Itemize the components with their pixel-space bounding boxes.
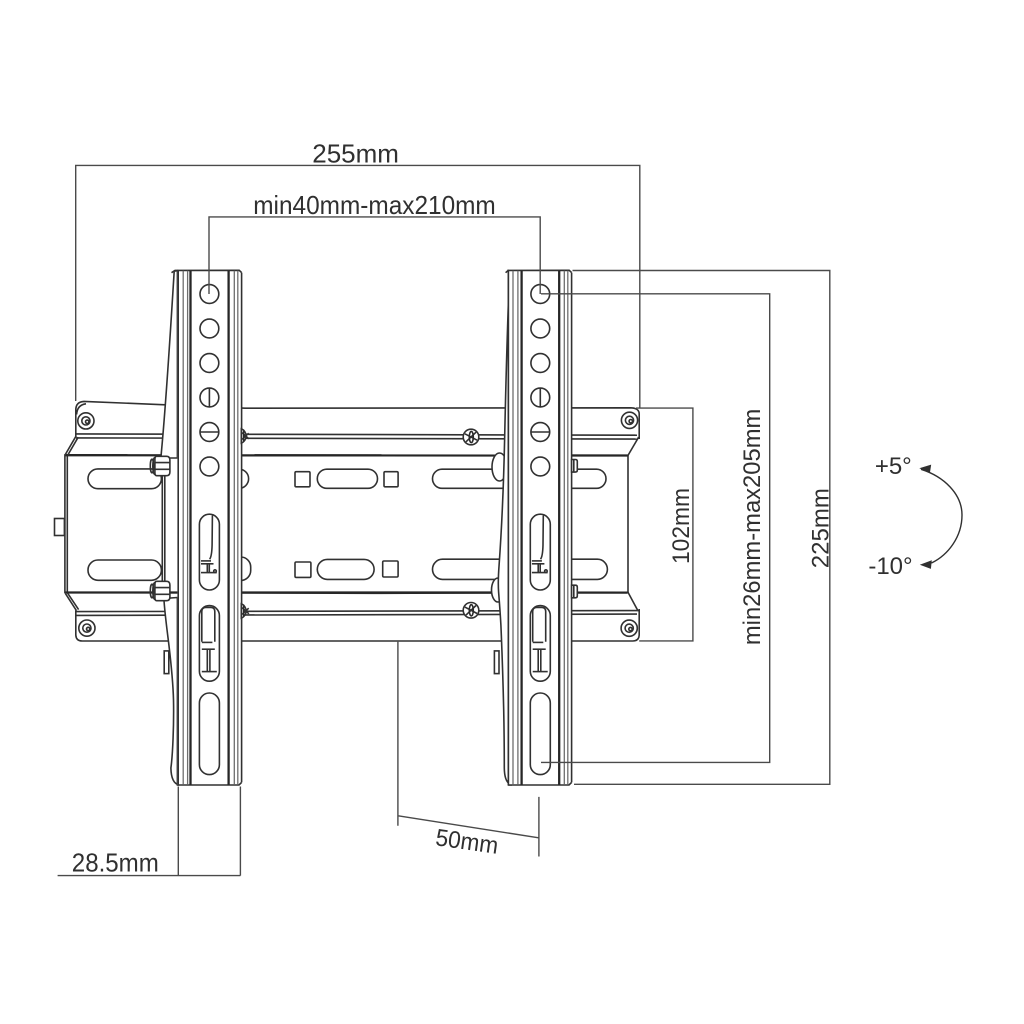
svg-text:min26mm-max205mm: min26mm-max205mm — [739, 409, 766, 646]
svg-text:225mm: 225mm — [807, 488, 834, 568]
svg-text:-10°: -10° — [868, 553, 912, 580]
svg-text:255mm: 255mm — [312, 138, 399, 168]
svg-text:+5°: +5° — [875, 453, 912, 480]
svg-text:28.5mm: 28.5mm — [72, 848, 159, 878]
svg-text:102mm: 102mm — [668, 488, 695, 564]
svg-text:min40mm-max210mm: min40mm-max210mm — [253, 190, 496, 220]
